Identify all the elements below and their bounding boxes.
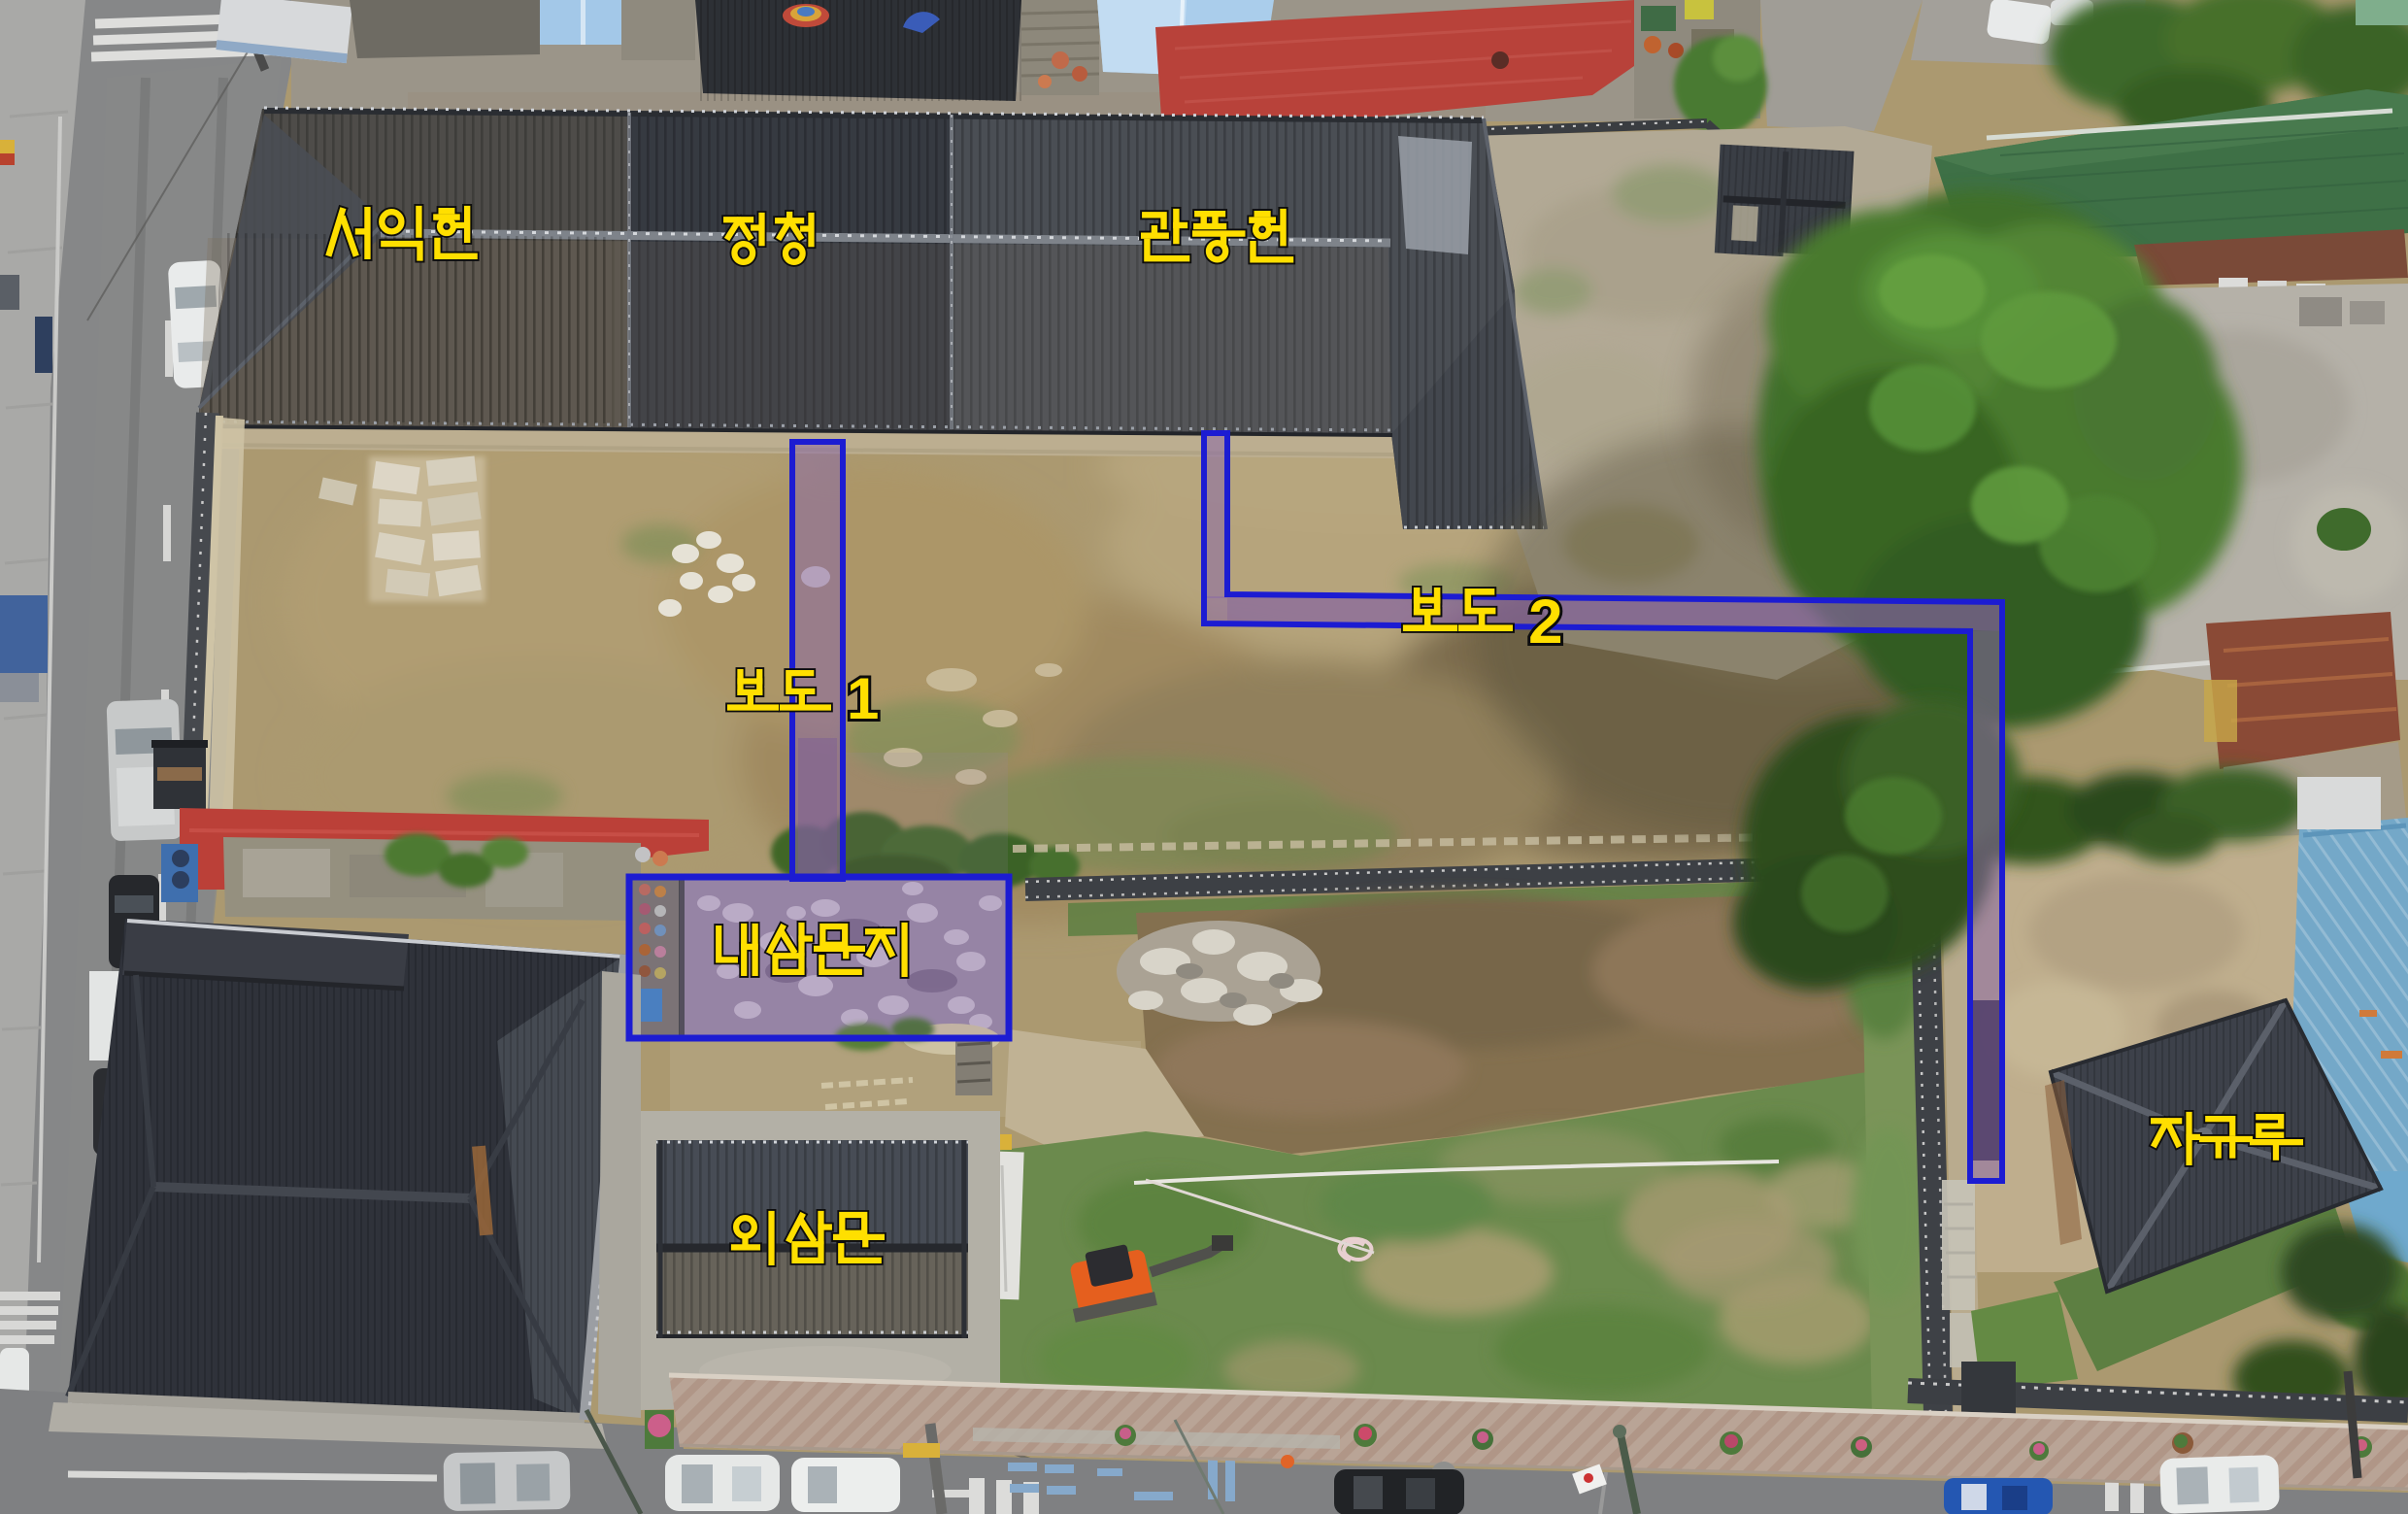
svg-text:1: 1: [847, 666, 879, 731]
svg-text:2: 2: [1528, 587, 1563, 656]
